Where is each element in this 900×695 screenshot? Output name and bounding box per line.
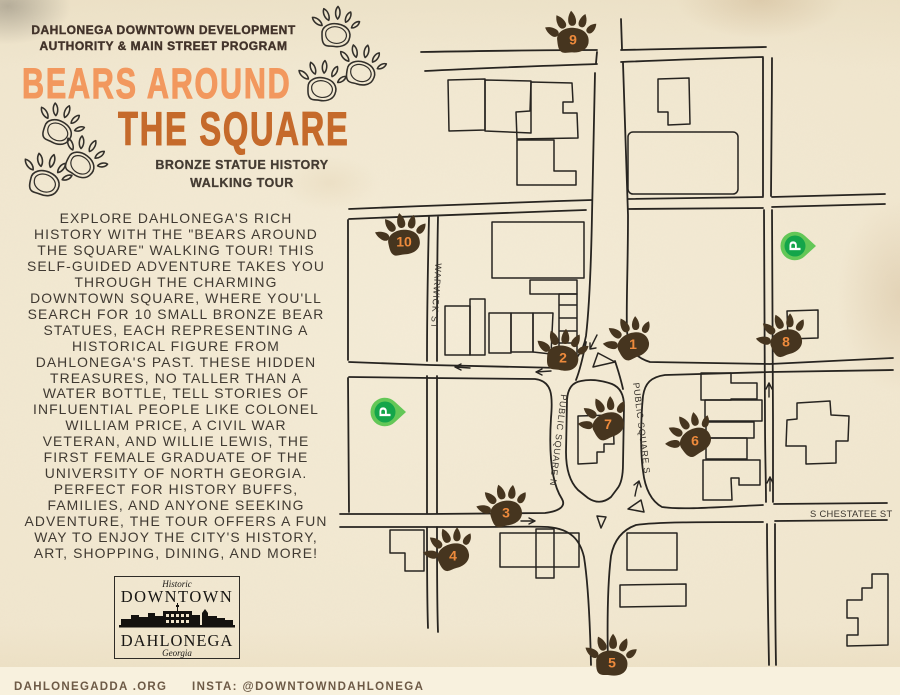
svg-text:1: 1: [629, 336, 637, 352]
svg-text:PUBLIC SQUARE S: PUBLIC SQUARE S: [631, 382, 652, 475]
svg-text:S CHESTATEE ST: S CHESTATEE ST: [810, 508, 893, 519]
svg-text:WARWICK ST: WARWICK ST: [429, 263, 444, 330]
svg-text:3: 3: [502, 505, 510, 521]
svg-text:10: 10: [396, 234, 412, 250]
svg-text:2: 2: [559, 350, 567, 366]
svg-text:7: 7: [604, 416, 612, 432]
svg-text:9: 9: [569, 32, 577, 48]
svg-text:8: 8: [782, 334, 790, 350]
svg-text:4: 4: [449, 548, 457, 564]
svg-text:5: 5: [608, 655, 616, 671]
svg-text:6: 6: [691, 433, 699, 449]
